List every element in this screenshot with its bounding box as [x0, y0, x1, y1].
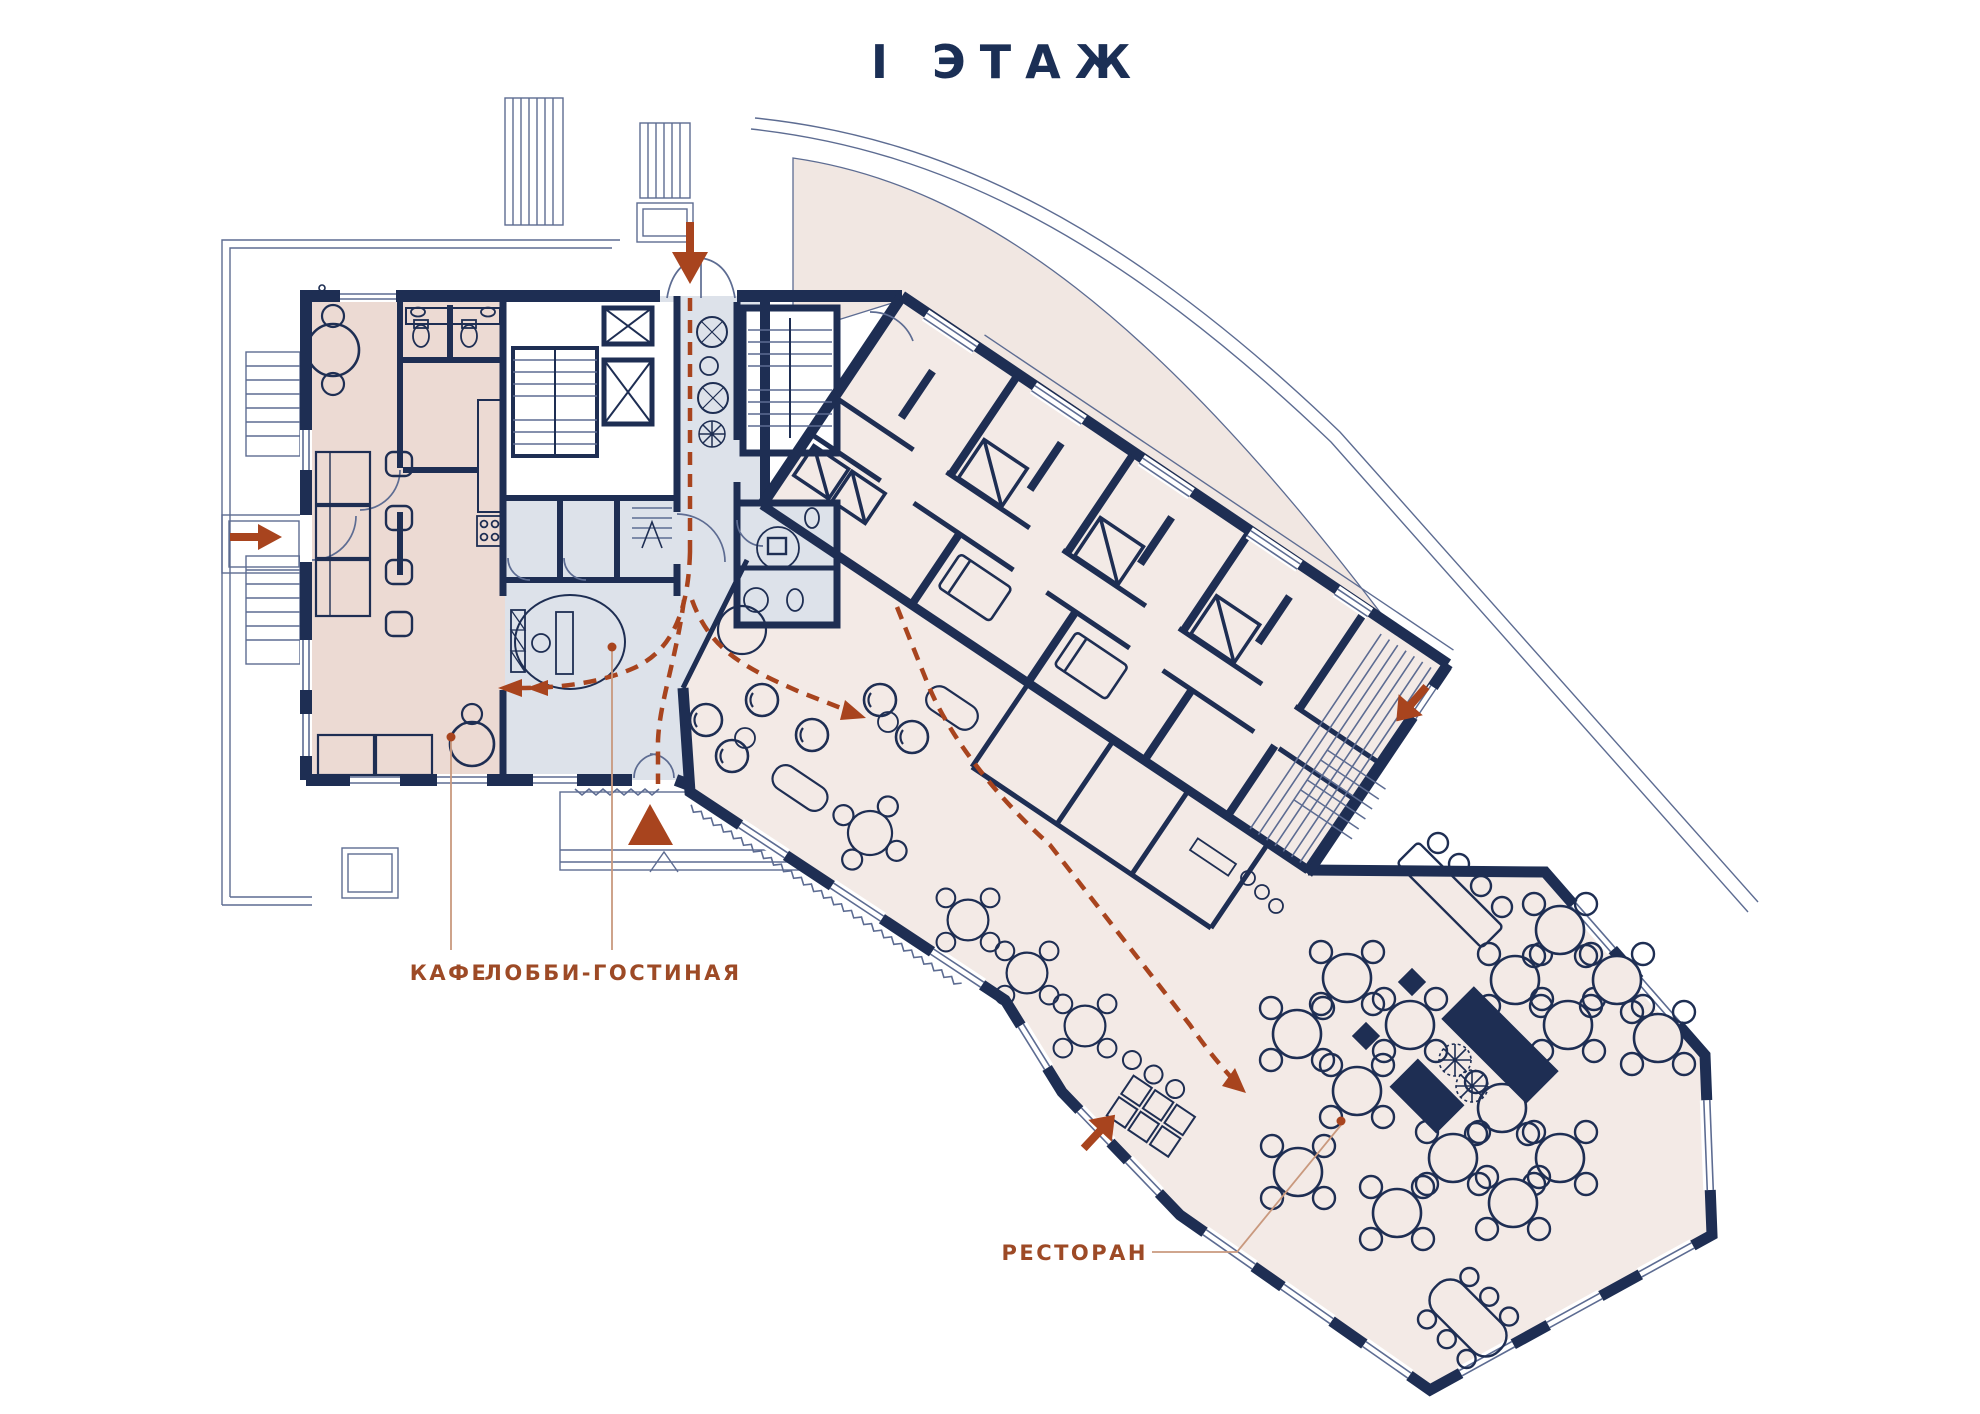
exterior-stairs-icon	[246, 352, 300, 664]
west-entrance-arrow-icon	[230, 524, 282, 550]
floor-plan-drawing: I ЭТАЖ КАФЕ ЛОББИ-ГОСТИНАЯ РЕСТОРАН	[0, 0, 1980, 1414]
label-lobby-lounge: ЛОББИ-ГОСТИНАЯ	[484, 961, 741, 985]
page-title: I ЭТАЖ	[871, 35, 1145, 89]
fan-icon	[699, 421, 725, 447]
north-entrance-arrow-icon	[672, 222, 708, 284]
ramp-icon	[505, 98, 693, 242]
floor-plan-page: I ЭТАЖ КАФЕ ЛОББИ-ГОСТИНАЯ РЕСТОРАН	[0, 0, 1980, 1414]
label-restaurant: РЕСТОРАН	[1001, 1241, 1148, 1265]
label-cafe: КАФЕ	[410, 961, 489, 985]
main-entrance-triangle-icon	[628, 804, 673, 845]
